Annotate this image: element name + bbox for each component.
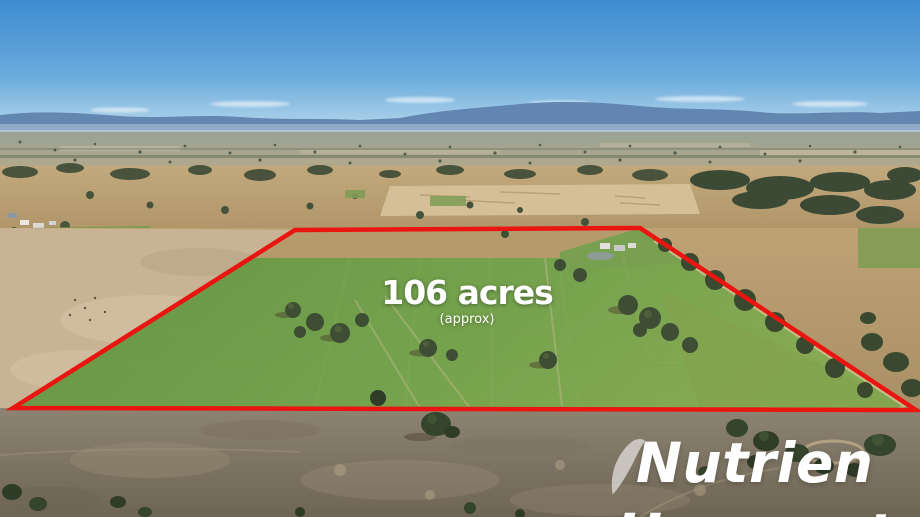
distant-plain xyxy=(0,132,920,168)
area-label: 106 acres xyxy=(381,276,553,311)
watermark-line2-clipped: Harcourts xyxy=(616,504,920,517)
farm-dam xyxy=(586,252,614,260)
area-qualifier: (approx) xyxy=(381,312,553,327)
watermark-line1: Nutrien xyxy=(636,433,873,494)
area-annotation: 106 acres (approx) xyxy=(381,276,553,327)
aerial-photo: /* stroke color bound below via second a… xyxy=(0,0,920,517)
